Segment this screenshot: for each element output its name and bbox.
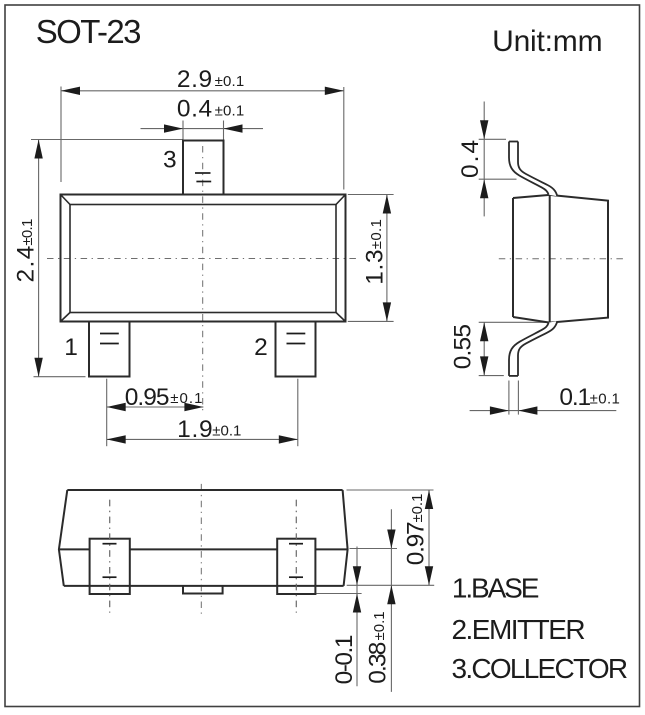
svg-text:3.COLLECTOR: 3.COLLECTOR (452, 653, 629, 684)
svg-text:0.97: 0.97 (403, 521, 430, 565)
svg-text:0.4: 0.4 (177, 96, 212, 123)
svg-text:0.38: 0.38 (364, 642, 391, 684)
svg-text:SOT-23: SOT-23 (36, 13, 142, 50)
svg-text:1.9: 1.9 (177, 416, 213, 443)
svg-text:2.EMITTER: 2.EMITTER (452, 614, 586, 645)
svg-text:Unit:mm: Unit:mm (492, 25, 602, 58)
svg-text:3: 3 (163, 147, 177, 174)
svg-text:±0.1: ±0.1 (368, 219, 385, 249)
svg-text:±0.1: ±0.1 (590, 390, 620, 407)
svg-text:±0.1: ±0.1 (215, 102, 245, 119)
svg-text:0-0.1: 0-0.1 (331, 635, 358, 685)
svg-text:±0.1: ±0.1 (170, 390, 202, 407)
svg-text:±0.1: ±0.1 (409, 494, 426, 523)
svg-text:2: 2 (254, 334, 268, 361)
svg-text:2.9: 2.9 (177, 66, 212, 93)
svg-text:±0.1: ±0.1 (212, 423, 241, 440)
svg-text:±0.1: ±0.1 (215, 73, 245, 90)
svg-text:±0.1: ±0.1 (19, 219, 36, 246)
svg-text:1.BASE: 1.BASE (452, 573, 540, 604)
svg-text:±0.1: ±0.1 (371, 611, 388, 640)
svg-text:1: 1 (64, 334, 78, 361)
svg-text:0.1: 0.1 (559, 384, 591, 411)
svg-text:1.3: 1.3 (361, 249, 388, 284)
svg-text:0.4: 0.4 (457, 140, 484, 178)
svg-text:0.55: 0.55 (450, 324, 477, 369)
svg-text:2.4: 2.4 (13, 246, 40, 283)
svg-text:0.95: 0.95 (125, 384, 170, 411)
